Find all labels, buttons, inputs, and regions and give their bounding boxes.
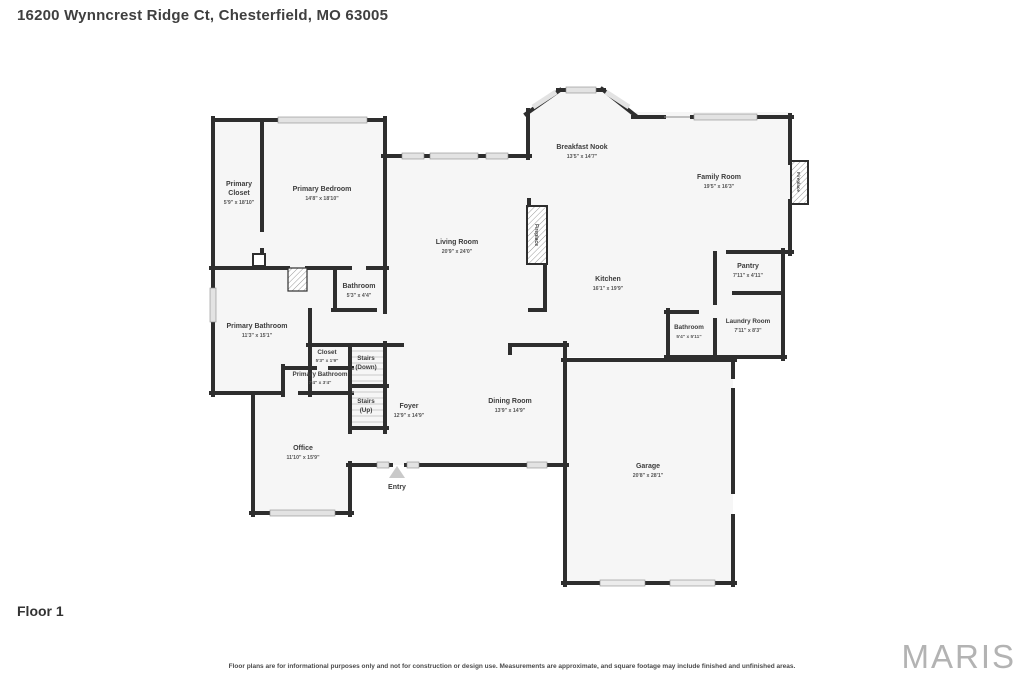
fireplace-living: Fireplace [527, 206, 547, 264]
fireplace-family: Fireplace [791, 161, 808, 204]
room-dims: 5'3" x 4'4" [347, 293, 372, 299]
room-dims: 16'1" x 19'9" [593, 286, 624, 292]
room-dims: 20'9" x 24'0" [442, 249, 473, 255]
room-name: Closet [228, 190, 250, 197]
room-dims: 5'4" x 5'11" [676, 334, 701, 340]
room-name: Dining Room [488, 398, 532, 405]
fireplace-family-label: Fireplace [796, 172, 801, 192]
room-name: Office [293, 445, 313, 452]
room-dims: 19'5" x 16'3" [704, 184, 735, 190]
room-dims: 7'11" x 8'3" [734, 328, 762, 334]
room-dims: 11'10" x 15'9" [286, 455, 320, 461]
room-dims: 7'11" x 4'11" [733, 273, 763, 279]
room-name: Bathroom [674, 324, 704, 331]
room-dims: 5'9" x 18'10" [224, 200, 255, 206]
room-name: (Down) [355, 364, 376, 371]
room-name: Primary Bathroom [226, 323, 287, 330]
room-name: Foyer [399, 403, 418, 410]
room-name: Stairs [357, 398, 375, 405]
room-dims: 5'3" x 1'9" [316, 358, 339, 364]
fireplace-living-label: Fireplace [533, 224, 539, 246]
room-dims: 13'5" x 14'7" [567, 154, 598, 160]
room-dims: 12'9" x 14'9" [394, 413, 425, 419]
entry-label: Entry [388, 484, 406, 491]
floor-label: Floor 1 [17, 603, 64, 619]
room-name: Living Room [436, 239, 478, 246]
page: { "header": { "title": "16200 Wynncrest … [0, 0, 1024, 682]
room-name: Garage [636, 463, 660, 470]
room-dims: 7'4" x 3'4" [309, 380, 332, 386]
room-name: Stairs [357, 355, 375, 362]
room-name: (Up) [360, 407, 373, 414]
disclaimer-text: Floor plans are for informational purpos… [0, 663, 1024, 670]
room-name: Pantry [737, 263, 759, 270]
room-name: Bathroom [342, 283, 375, 290]
room-name: Closet [317, 349, 337, 356]
room-name: Laundry Room [726, 318, 771, 325]
floor-fills [213, 90, 790, 583]
entry-marker: Entry [388, 466, 406, 491]
room-name: Breakfast Nook [556, 144, 607, 151]
room-name: Primary [226, 181, 252, 188]
room-name: Kitchen [595, 276, 621, 283]
maris-watermark: MARIS [901, 638, 1016, 676]
room-dims: 20'8" x 28'1" [633, 473, 664, 479]
room-dims: 13'9" x 14'9" [495, 408, 526, 414]
room-name: Primary Bathroom [293, 371, 348, 378]
room-name: Primary Bedroom [293, 186, 352, 193]
floor-plan: Fireplace Fireplace Entry Primary Closet… [0, 0, 1024, 682]
room-dims: 14'8" x 18'10" [305, 196, 339, 202]
room-name: Family Room [697, 174, 741, 181]
room-dims: 11'3" x 15'1" [242, 333, 273, 339]
